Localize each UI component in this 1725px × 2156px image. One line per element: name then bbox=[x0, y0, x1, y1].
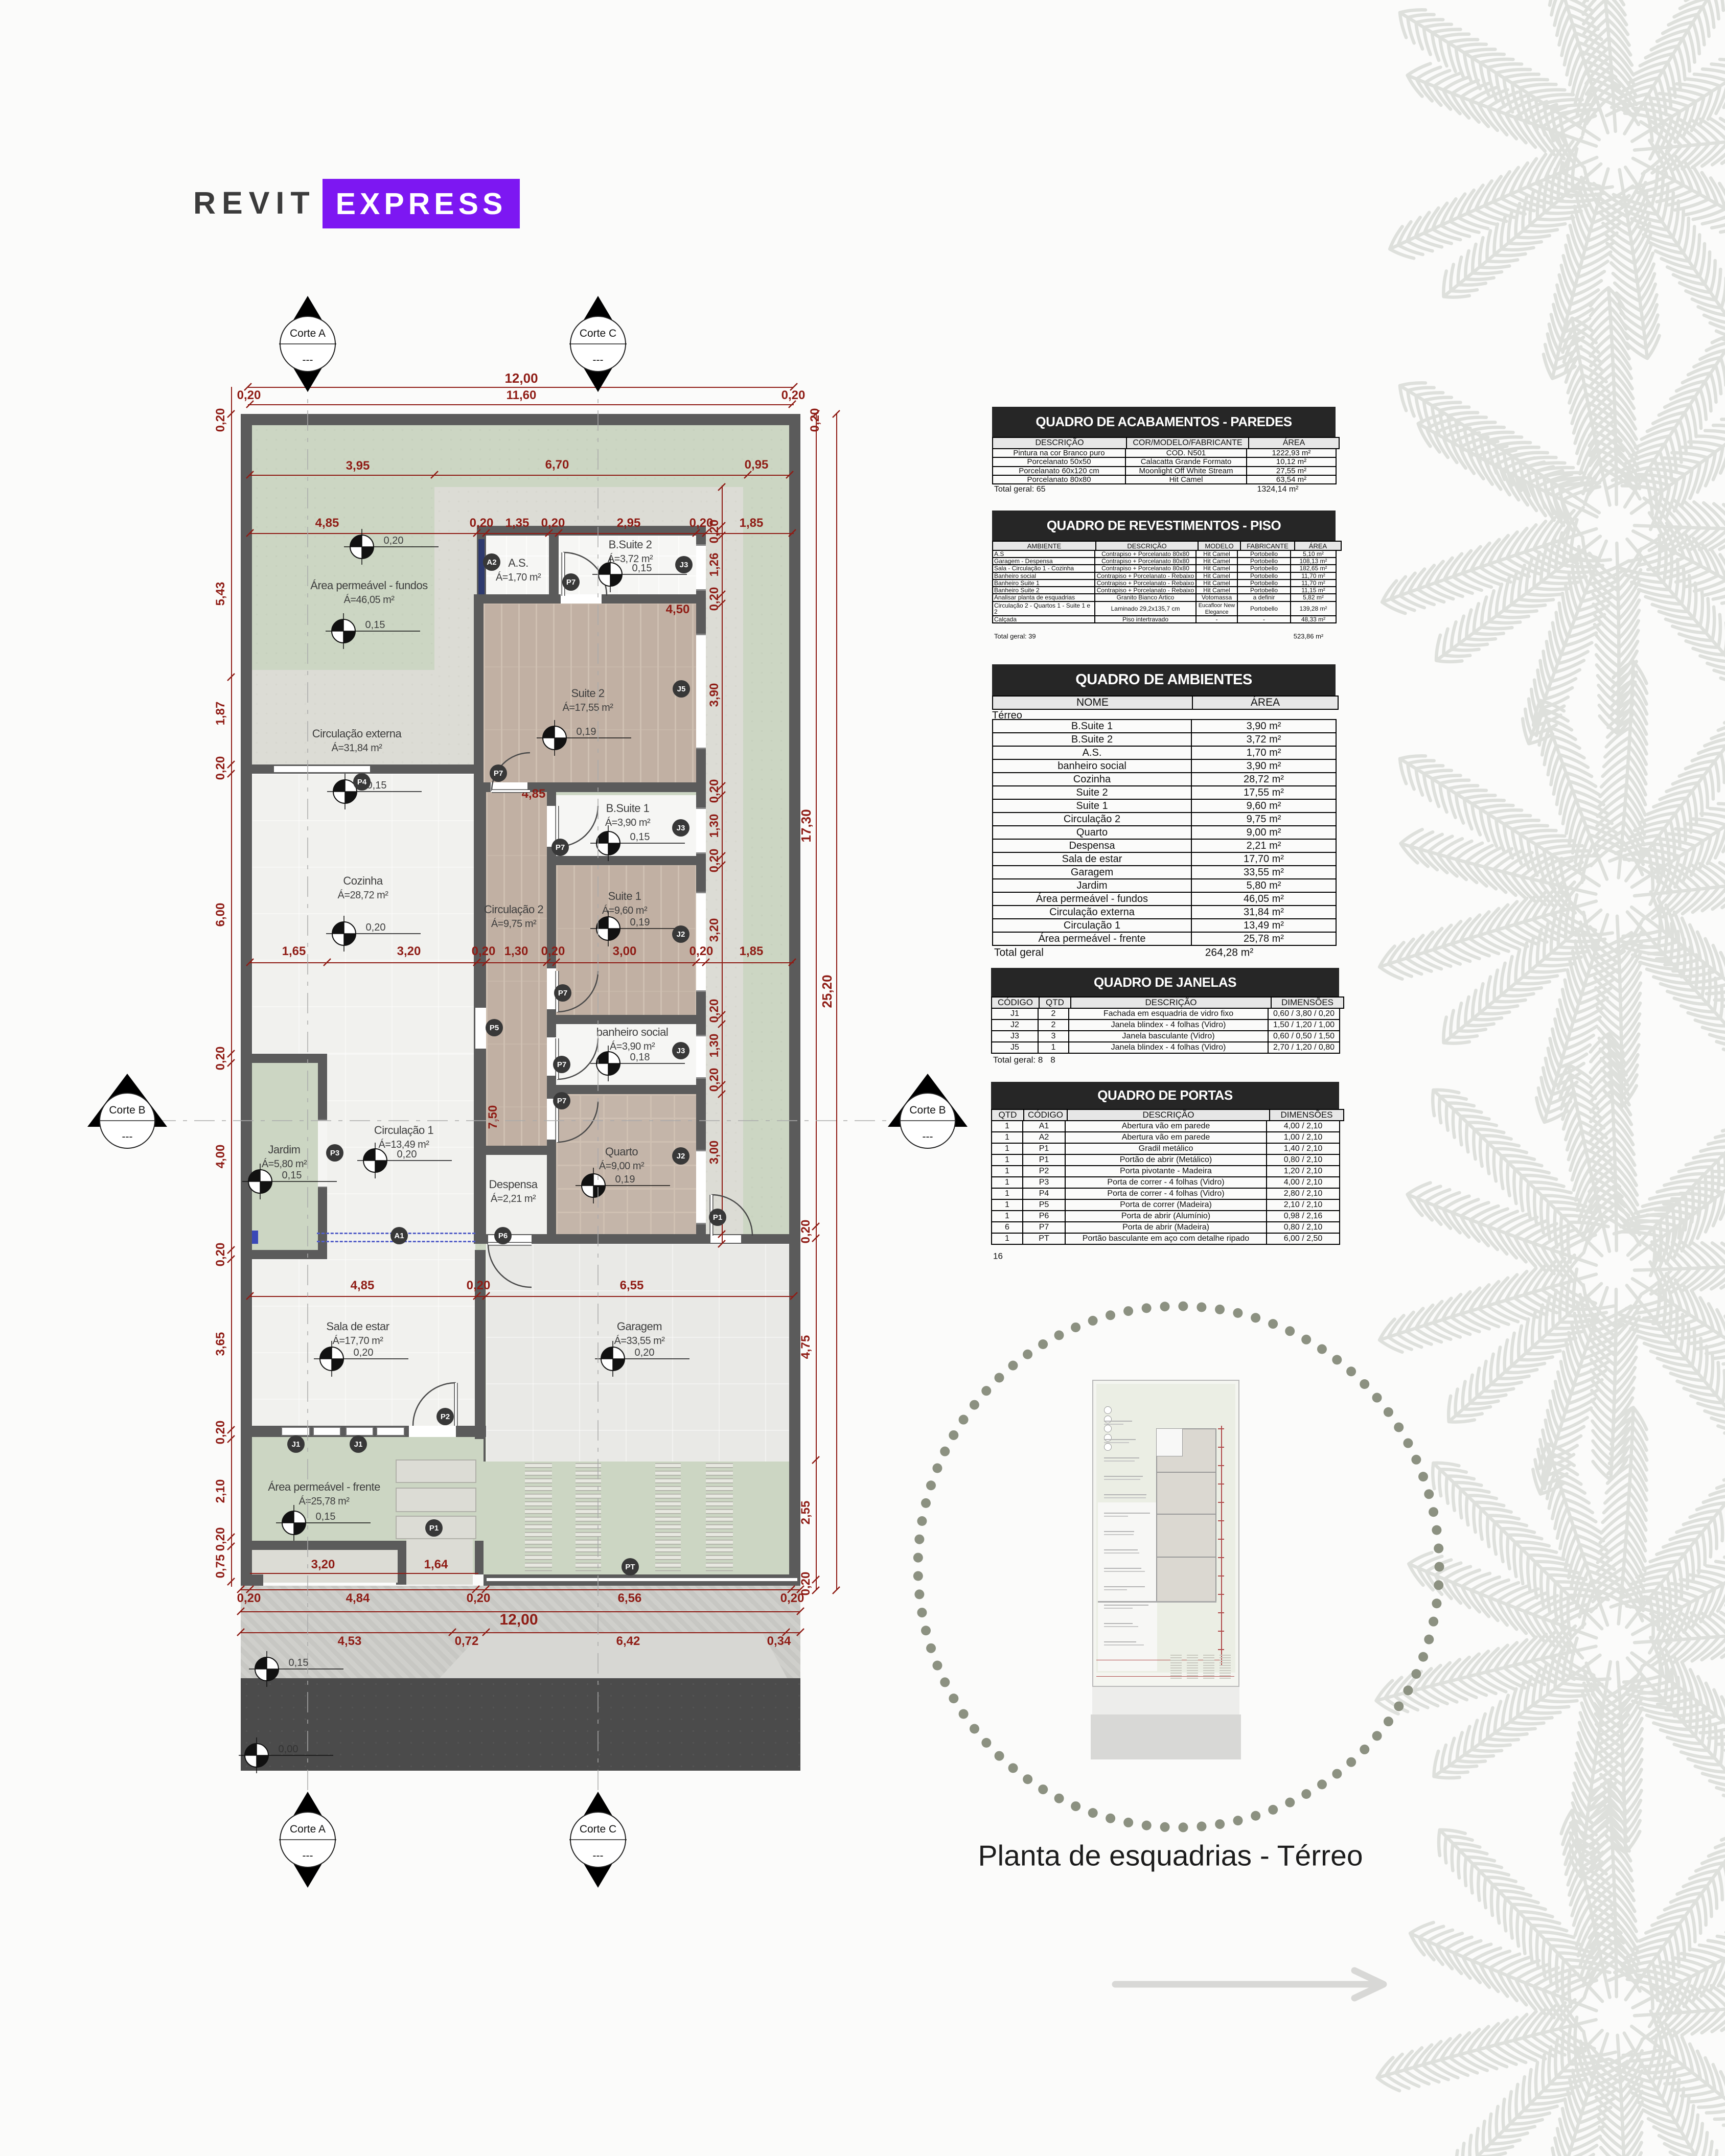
svg-text:---: --- bbox=[303, 354, 313, 366]
svg-text:---: --- bbox=[122, 1131, 133, 1143]
svg-text:Corte A: Corte A bbox=[290, 1823, 326, 1835]
svg-text:Corte B: Corte B bbox=[109, 1104, 145, 1116]
svg-text:---: --- bbox=[923, 1131, 933, 1143]
svg-text:Corte A: Corte A bbox=[290, 328, 326, 339]
svg-text:Corte C: Corte C bbox=[580, 1823, 616, 1835]
svg-text:---: --- bbox=[303, 1850, 313, 1862]
svg-text:Corte B: Corte B bbox=[909, 1104, 946, 1116]
svg-text:---: --- bbox=[593, 354, 604, 366]
svg-text:Corte C: Corte C bbox=[580, 328, 616, 339]
svg-text:---: --- bbox=[593, 1850, 604, 1862]
